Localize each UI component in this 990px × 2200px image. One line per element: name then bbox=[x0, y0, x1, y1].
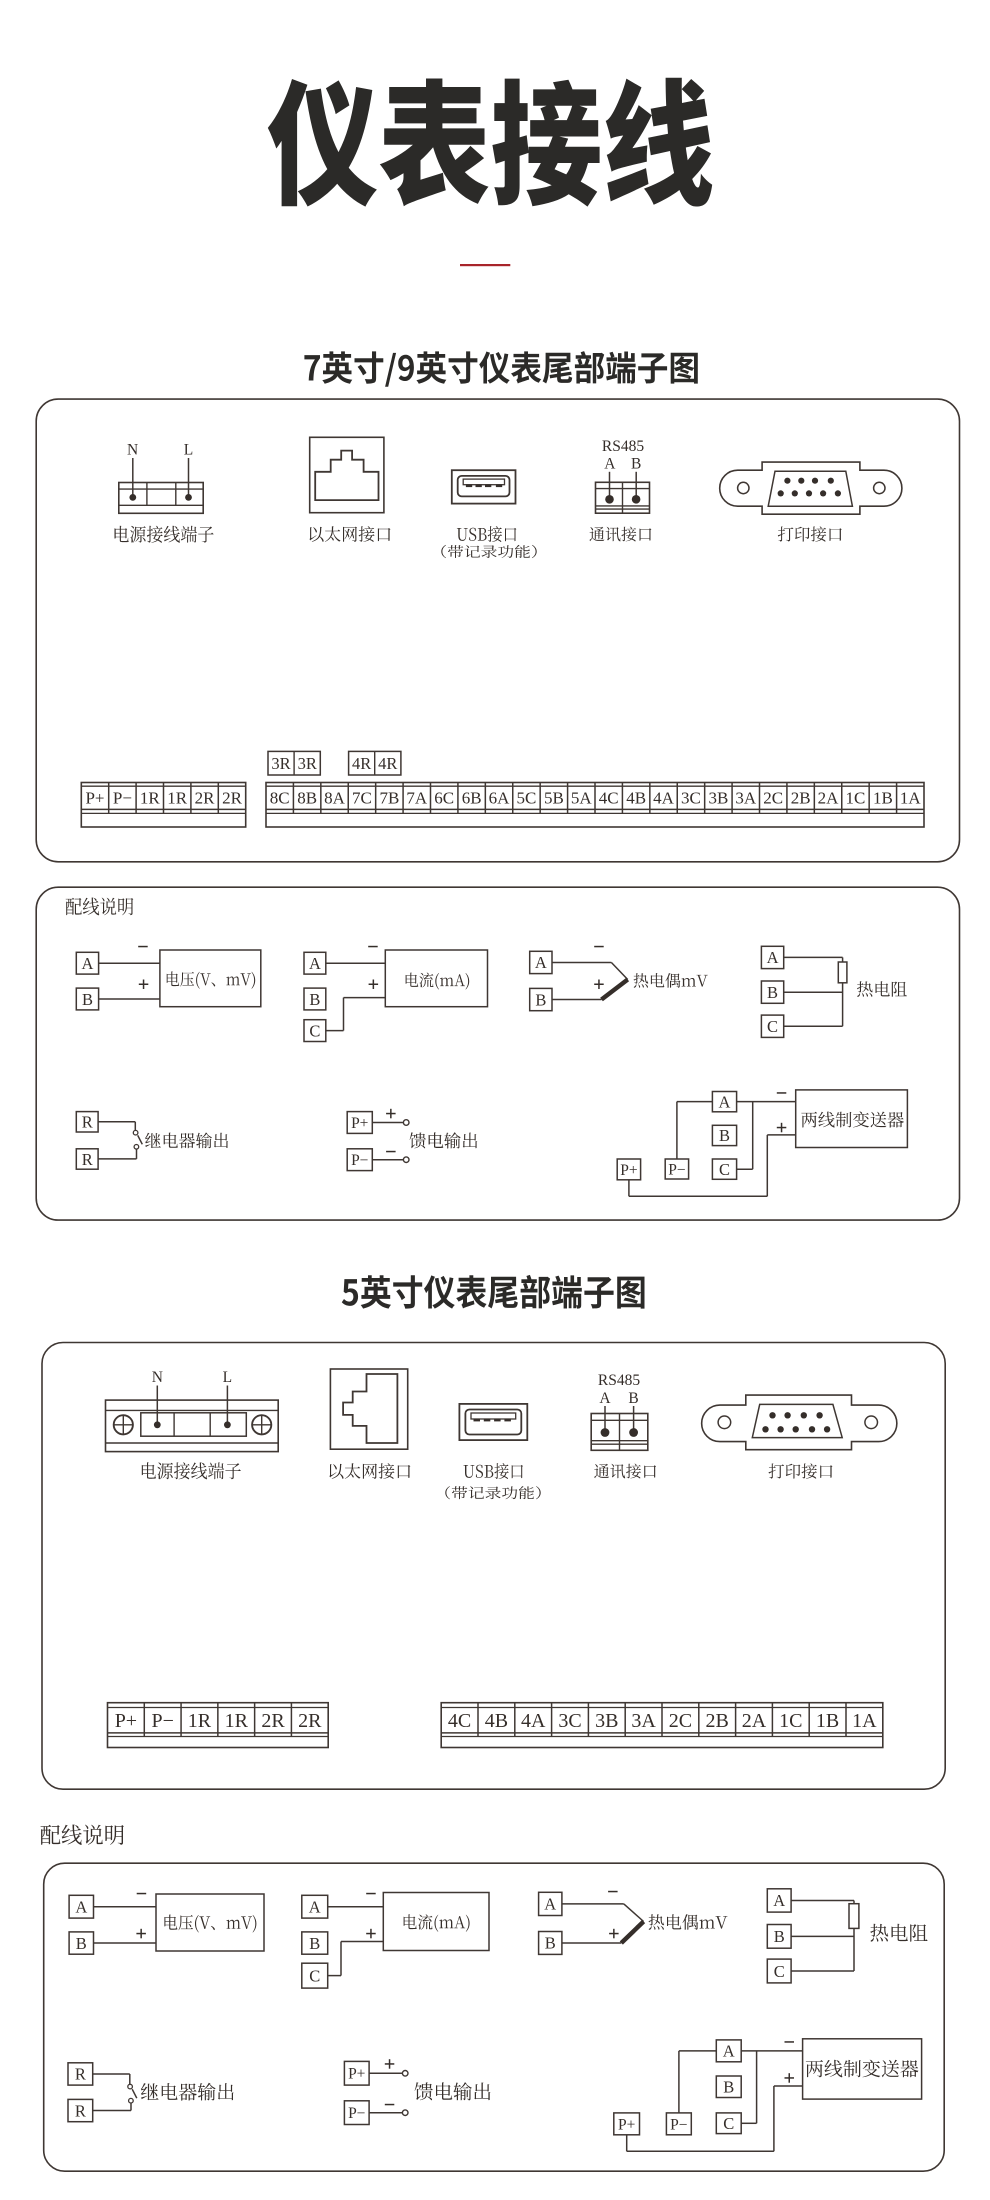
svg-text:5A: 5A bbox=[571, 789, 593, 808]
svg-text:3B: 3B bbox=[708, 789, 728, 808]
svg-text:4C: 4C bbox=[599, 789, 619, 808]
svg-text:2C: 2C bbox=[669, 1710, 692, 1732]
svg-text:4B: 4B bbox=[626, 789, 646, 808]
svg-text:4A: 4A bbox=[653, 789, 675, 808]
svg-text:C: C bbox=[719, 1160, 730, 1179]
svg-text:P−: P− bbox=[151, 1710, 173, 1732]
svg-text:B: B bbox=[628, 1390, 638, 1407]
svg-text:B: B bbox=[309, 990, 320, 1009]
svg-text:2B: 2B bbox=[791, 789, 811, 808]
svg-text:3R: 3R bbox=[271, 754, 290, 773]
svg-text:2C: 2C bbox=[763, 789, 783, 808]
svg-text:1R: 1R bbox=[188, 1710, 212, 1732]
svg-text:3R: 3R bbox=[298, 754, 317, 773]
svg-text:1C: 1C bbox=[846, 789, 866, 808]
svg-text:2A: 2A bbox=[742, 1710, 767, 1732]
svg-text:B: B bbox=[719, 1126, 730, 1145]
svg-text:B: B bbox=[309, 1934, 320, 1953]
svg-text:A: A bbox=[309, 954, 321, 973]
svg-text:B: B bbox=[723, 2078, 734, 2097]
svg-text:C: C bbox=[774, 1962, 785, 1981]
svg-text:7A: 7A bbox=[406, 789, 428, 808]
svg-text:1R: 1R bbox=[140, 789, 161, 808]
svg-text:4A: 4A bbox=[521, 1710, 546, 1732]
svg-text:2B: 2B bbox=[706, 1710, 729, 1732]
svg-text:N: N bbox=[152, 1369, 163, 1386]
svg-text:C: C bbox=[723, 2114, 734, 2133]
svg-text:N: N bbox=[127, 442, 138, 459]
svg-text:5C: 5C bbox=[517, 789, 537, 808]
svg-text:1A: 1A bbox=[852, 1710, 877, 1732]
svg-text:L: L bbox=[184, 442, 193, 459]
svg-text:B: B bbox=[767, 983, 778, 1002]
svg-text:B: B bbox=[76, 1934, 87, 1953]
svg-text:L: L bbox=[223, 1369, 232, 1386]
svg-text:1A: 1A bbox=[900, 789, 922, 808]
svg-text:3A: 3A bbox=[735, 789, 757, 808]
svg-text:1B: 1B bbox=[816, 1710, 839, 1732]
svg-text:3B: 3B bbox=[595, 1710, 618, 1732]
svg-text:3C: 3C bbox=[558, 1710, 581, 1732]
svg-text:C: C bbox=[309, 1966, 320, 1985]
svg-text:8B: 8B bbox=[297, 789, 317, 808]
svg-text:A: A bbox=[604, 455, 616, 472]
svg-text:7C: 7C bbox=[352, 789, 372, 808]
svg-text:7B: 7B bbox=[379, 789, 399, 808]
svg-text:A: A bbox=[773, 1891, 785, 1910]
svg-text:C: C bbox=[767, 1017, 778, 1036]
svg-text:1C: 1C bbox=[779, 1710, 802, 1732]
svg-text:R: R bbox=[82, 1150, 93, 1169]
svg-text:B: B bbox=[631, 455, 641, 472]
svg-text:3A: 3A bbox=[631, 1710, 656, 1732]
svg-text:A: A bbox=[309, 1898, 321, 1917]
svg-text:P+: P+ bbox=[115, 1710, 137, 1732]
svg-text:4R: 4R bbox=[378, 754, 397, 773]
svg-text:A: A bbox=[723, 2042, 735, 2061]
svg-text:C: C bbox=[309, 1021, 320, 1040]
svg-text:8A: 8A bbox=[324, 789, 346, 808]
svg-text:A: A bbox=[535, 953, 547, 972]
svg-text:A: A bbox=[767, 948, 779, 967]
svg-text:6C: 6C bbox=[434, 789, 454, 808]
svg-text:8C: 8C bbox=[270, 789, 290, 808]
svg-text:R: R bbox=[82, 1113, 93, 1132]
svg-text:A: A bbox=[75, 1898, 87, 1917]
svg-text:2R: 2R bbox=[298, 1710, 322, 1732]
svg-text:6A: 6A bbox=[489, 789, 511, 808]
svg-text:B: B bbox=[774, 1927, 785, 1946]
svg-text:A: A bbox=[81, 954, 93, 973]
svg-text:2R: 2R bbox=[222, 789, 243, 808]
svg-text:P−: P− bbox=[351, 1152, 368, 1169]
svg-text:P−: P− bbox=[348, 2105, 365, 2122]
svg-text:6B: 6B bbox=[462, 789, 482, 808]
svg-text:3C: 3C bbox=[681, 789, 701, 808]
svg-text:RS485: RS485 bbox=[598, 1372, 640, 1389]
svg-text:R: R bbox=[75, 2065, 86, 2084]
svg-text:A: A bbox=[544, 1895, 556, 1914]
svg-text:1B: 1B bbox=[873, 789, 893, 808]
svg-text:P+: P+ bbox=[351, 1115, 368, 1132]
svg-text:B: B bbox=[535, 990, 546, 1009]
svg-text:P−: P− bbox=[670, 2116, 687, 2133]
svg-text:5B: 5B bbox=[544, 789, 564, 808]
svg-text:4R: 4R bbox=[352, 754, 371, 773]
svg-text:A: A bbox=[719, 1092, 731, 1111]
svg-text:P+: P+ bbox=[620, 1162, 637, 1179]
svg-text:B: B bbox=[545, 1934, 556, 1953]
svg-text:P+: P+ bbox=[618, 2116, 635, 2133]
svg-text:4C: 4C bbox=[448, 1710, 471, 1732]
svg-text:P+: P+ bbox=[348, 2066, 365, 2083]
svg-text:4B: 4B bbox=[485, 1710, 508, 1732]
svg-text:2R: 2R bbox=[195, 789, 216, 808]
svg-text:B: B bbox=[82, 990, 93, 1009]
svg-text:1R: 1R bbox=[167, 789, 188, 808]
svg-text:2R: 2R bbox=[261, 1710, 285, 1732]
svg-text:2A: 2A bbox=[818, 789, 840, 808]
svg-text:P−: P− bbox=[113, 789, 132, 808]
svg-text:P−: P− bbox=[668, 1161, 685, 1178]
svg-text:P+: P+ bbox=[85, 789, 104, 808]
svg-text:1R: 1R bbox=[225, 1710, 249, 1732]
svg-text:RS485: RS485 bbox=[602, 438, 644, 455]
svg-text:R: R bbox=[75, 2101, 86, 2120]
svg-text:A: A bbox=[599, 1390, 611, 1407]
